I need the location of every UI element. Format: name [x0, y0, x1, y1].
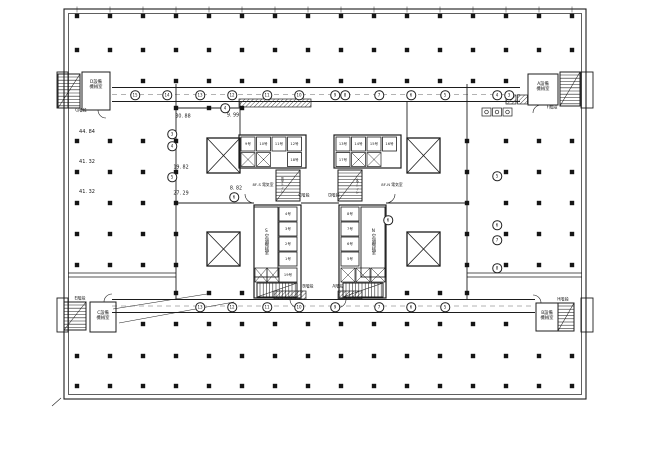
elevator-12-label: 12号 [290, 142, 298, 146]
dim-27-29: 27. 29 [173, 191, 188, 196]
dim-19-82: 19. 82 [173, 165, 188, 170]
grid-bubble-6: 6 [492, 220, 502, 230]
grid-bubble-5: 5 [440, 90, 450, 100]
grid-bubble-9: 9 [330, 90, 340, 100]
elevator-3-label: 3号 [285, 227, 291, 231]
stair-f-label: F階段 [547, 106, 558, 111]
grid-bubble-5: 5 [167, 172, 177, 182]
grid-bubble-4: 4 [220, 103, 230, 113]
toilet-s-label: 男子トイレ [279, 177, 283, 193]
grid-bubble-5: 5 [492, 171, 502, 181]
grid-bubble-8: 8 [492, 263, 502, 273]
grid-bubble-11: 11 [262, 302, 272, 312]
elevator-6-label: 6号 [347, 242, 353, 246]
grid-bubble-13: 13 [195, 302, 205, 312]
electric-room-s-label: 8F-S 電気室 [253, 183, 274, 187]
ac-room-n-label: N空調機械室 [370, 229, 375, 256]
elevator-18-label: 18号 [290, 157, 298, 161]
grid-bubble-5: 5 [440, 302, 450, 312]
elevator-1-label: 1号 [285, 257, 291, 261]
stair-g-label: G階段 [75, 109, 87, 114]
grid-bubble-3: 3 [167, 129, 177, 139]
grid-bubble-9: 9 [330, 302, 340, 312]
grid-bubble-11: 11 [262, 90, 272, 100]
stair-d-label: D階段 [328, 194, 340, 199]
elevator-17-label: 17号 [339, 157, 347, 161]
grid-bubble-8: 8 [340, 90, 350, 100]
dim-left-1: 44. 84 [79, 130, 95, 136]
label-layer: D設備機械室G階段A設備機械室F階段C設備機械室E階段B設備機械室H階段C階段D… [0, 0, 650, 456]
elevator-8-label: 8号 [347, 212, 353, 216]
room-c-machine-label: C設備機械室 [96, 312, 111, 322]
elevator-9-label: 9号 [245, 142, 251, 146]
grid-bubble-14: 14 [162, 90, 172, 100]
grid-bubble-3: 3 [504, 90, 514, 100]
dim-30-88: 30. 88 [175, 114, 190, 119]
grid-bubble-6: 6 [406, 302, 416, 312]
floor-plan-page: { "drawing": { "kind": "architectural-fl… [0, 0, 650, 456]
stair-e-label: E階段 [74, 297, 85, 302]
dim-8-82: 8. 82 [230, 186, 242, 191]
toilet-n-label: 女子トイレ [354, 178, 358, 194]
dim-9-99: 9. 99 [227, 113, 239, 118]
stair-c-label: C階段 [298, 194, 309, 199]
elevator-14-label: 14号 [354, 142, 362, 146]
ac-room-s-label: S空調機械室 [263, 229, 268, 256]
grid-bubble-7: 7 [374, 90, 384, 100]
room-b-machine-label: B設備機械室 [540, 312, 555, 322]
stair-b-label: B階段 [302, 285, 313, 290]
elevator-2-label: 2号 [285, 242, 291, 246]
elevator-11-label: 11号 [275, 142, 283, 146]
elevator-5-label: 5号 [347, 257, 353, 261]
dim-left-3: 41. 32 [79, 190, 95, 196]
grid-bubble-12: 12 [227, 302, 237, 312]
elevator-16-label: 16号 [385, 142, 393, 146]
room-d-machine-label: D設備機械室 [89, 81, 104, 91]
grid-bubble-6: 6 [383, 215, 393, 225]
electric-room-n-label: 8F-N 電気室 [381, 183, 402, 187]
elevator-15-label: 15号 [370, 142, 378, 146]
grid-bubble-6: 6 [406, 90, 416, 100]
elevator-4-label: 4号 [285, 212, 291, 216]
dim-left-2: 41. 32 [79, 160, 95, 166]
elevator-19-label: 19号 [284, 273, 292, 277]
grid-bubble-4: 4 [492, 90, 502, 100]
stair-a-label: A階段 [332, 285, 343, 290]
elevator-13-label: 13号 [339, 142, 347, 146]
grid-bubble-4: 4 [167, 141, 177, 151]
elevator-10-label: 10号 [259, 142, 267, 146]
grid-bubble-12: 12 [227, 90, 237, 100]
room-a-machine-label: A設備機械室 [536, 83, 551, 93]
elevator-7-label: 7号 [347, 227, 353, 231]
grid-bubble-7: 7 [374, 302, 384, 312]
grid-bubble-6: 6 [229, 192, 239, 202]
grid-bubble-13: 13 [195, 90, 205, 100]
grid-bubble-10: 10 [294, 302, 304, 312]
stair-h-label: H階段 [557, 298, 569, 303]
grid-bubble-7: 7 [492, 235, 502, 245]
grid-bubble-10: 10 [294, 90, 304, 100]
grid-bubble-15: 15 [130, 90, 140, 100]
